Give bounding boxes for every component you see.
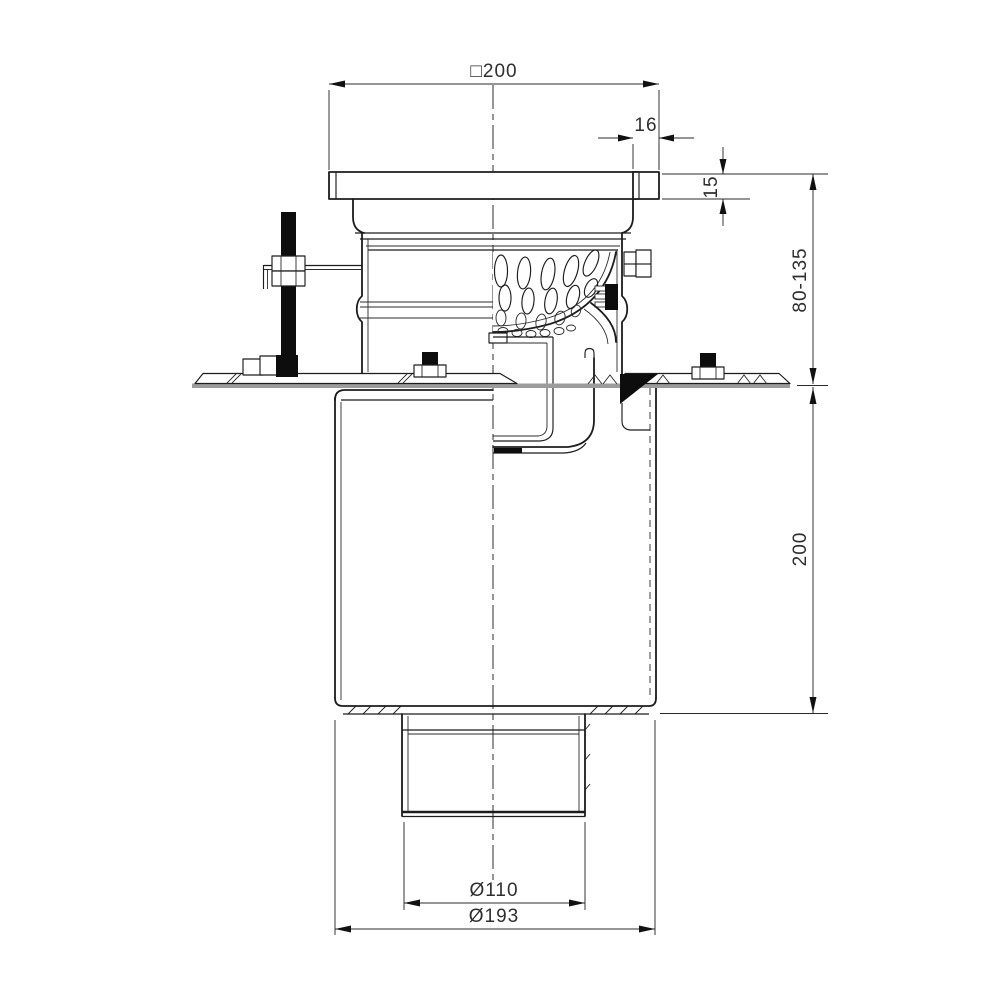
threaded-rod bbox=[281, 212, 296, 377]
dimension-flange-15: 15 bbox=[662, 147, 828, 226]
top-flange bbox=[329, 172, 659, 199]
dim-label-flange-height: 15 bbox=[701, 175, 722, 198]
flange-bolt-right bbox=[692, 353, 724, 379]
flange-bolt-center bbox=[414, 352, 446, 377]
membrane-sheet bbox=[192, 384, 790, 389]
dim-label-body-height: 200 bbox=[790, 532, 811, 567]
dimension-top-width: □200 bbox=[329, 61, 659, 170]
seal-wedge bbox=[620, 374, 658, 404]
dim-label-edge-width: 16 bbox=[634, 115, 657, 136]
barrel-body bbox=[335, 385, 656, 714]
rod-base-nuts bbox=[243, 355, 298, 377]
side-bolt bbox=[624, 250, 651, 277]
rod-nuts bbox=[272, 256, 305, 286]
dim-label-adjust-range: 80-135 bbox=[790, 247, 811, 312]
dim-label-body-diameter: Ø193 bbox=[469, 906, 519, 927]
floor-drain-drawing: □200 16 15 80-135 200 bbox=[0, 0, 1000, 1000]
bottom-hatch bbox=[348, 706, 643, 714]
leveling-rod bbox=[243, 212, 362, 377]
dim-label-outlet-diameter: Ø110 bbox=[469, 880, 518, 901]
dimension-edge-16: 16 bbox=[598, 115, 694, 169]
dim-label-square-width: □200 bbox=[470, 61, 517, 82]
dimension-outlet-diameter: Ø110 bbox=[404, 822, 585, 910]
technical-drawing-page: □200 16 15 80-135 200 bbox=[0, 0, 1000, 1000]
strainer-basket bbox=[493, 248, 616, 338]
dimension-height-80-135: 80-135 bbox=[790, 174, 828, 386]
seal-rings bbox=[595, 284, 618, 310]
outlet-spigot bbox=[402, 714, 590, 817]
dimension-body-200: 200 bbox=[660, 387, 828, 714]
